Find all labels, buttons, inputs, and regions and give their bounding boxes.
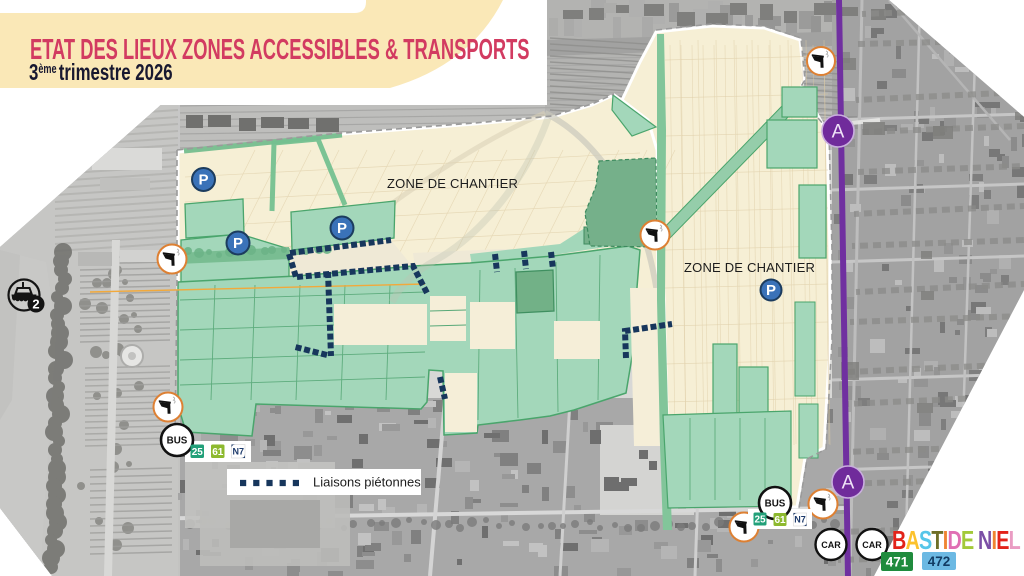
svg-text:CAR: CAR xyxy=(862,540,882,550)
svg-text:CAR: CAR xyxy=(821,540,841,550)
svg-text:ZONE DE CHANTIER: ZONE DE CHANTIER xyxy=(684,260,815,275)
svg-text:P: P xyxy=(198,172,208,189)
svg-text:2: 2 xyxy=(32,297,39,312)
svg-text:25: 25 xyxy=(192,447,204,458)
svg-text:P: P xyxy=(337,220,347,237)
svg-text:N7: N7 xyxy=(794,515,806,525)
svg-text:61: 61 xyxy=(774,515,786,526)
svg-text:61: 61 xyxy=(212,447,224,458)
svg-text:ZONE DE CHANTIER: ZONE DE CHANTIER xyxy=(387,176,518,191)
svg-text:471: 471 xyxy=(886,555,909,570)
svg-text:BUS: BUS xyxy=(167,436,188,447)
svg-text:BASTIDENIEL: BASTIDENIEL xyxy=(892,525,1021,554)
svg-text:BUS: BUS xyxy=(765,499,786,510)
svg-text:P: P xyxy=(233,235,243,252)
svg-text:Liaisons piétonnes: Liaisons piétonnes xyxy=(313,475,421,490)
svg-text:472: 472 xyxy=(928,554,951,569)
svg-text:25: 25 xyxy=(754,514,766,525)
svg-text:A: A xyxy=(832,122,845,143)
svg-text:P: P xyxy=(766,282,776,299)
svg-text:N7: N7 xyxy=(232,447,244,457)
svg-text:A: A xyxy=(842,473,855,494)
